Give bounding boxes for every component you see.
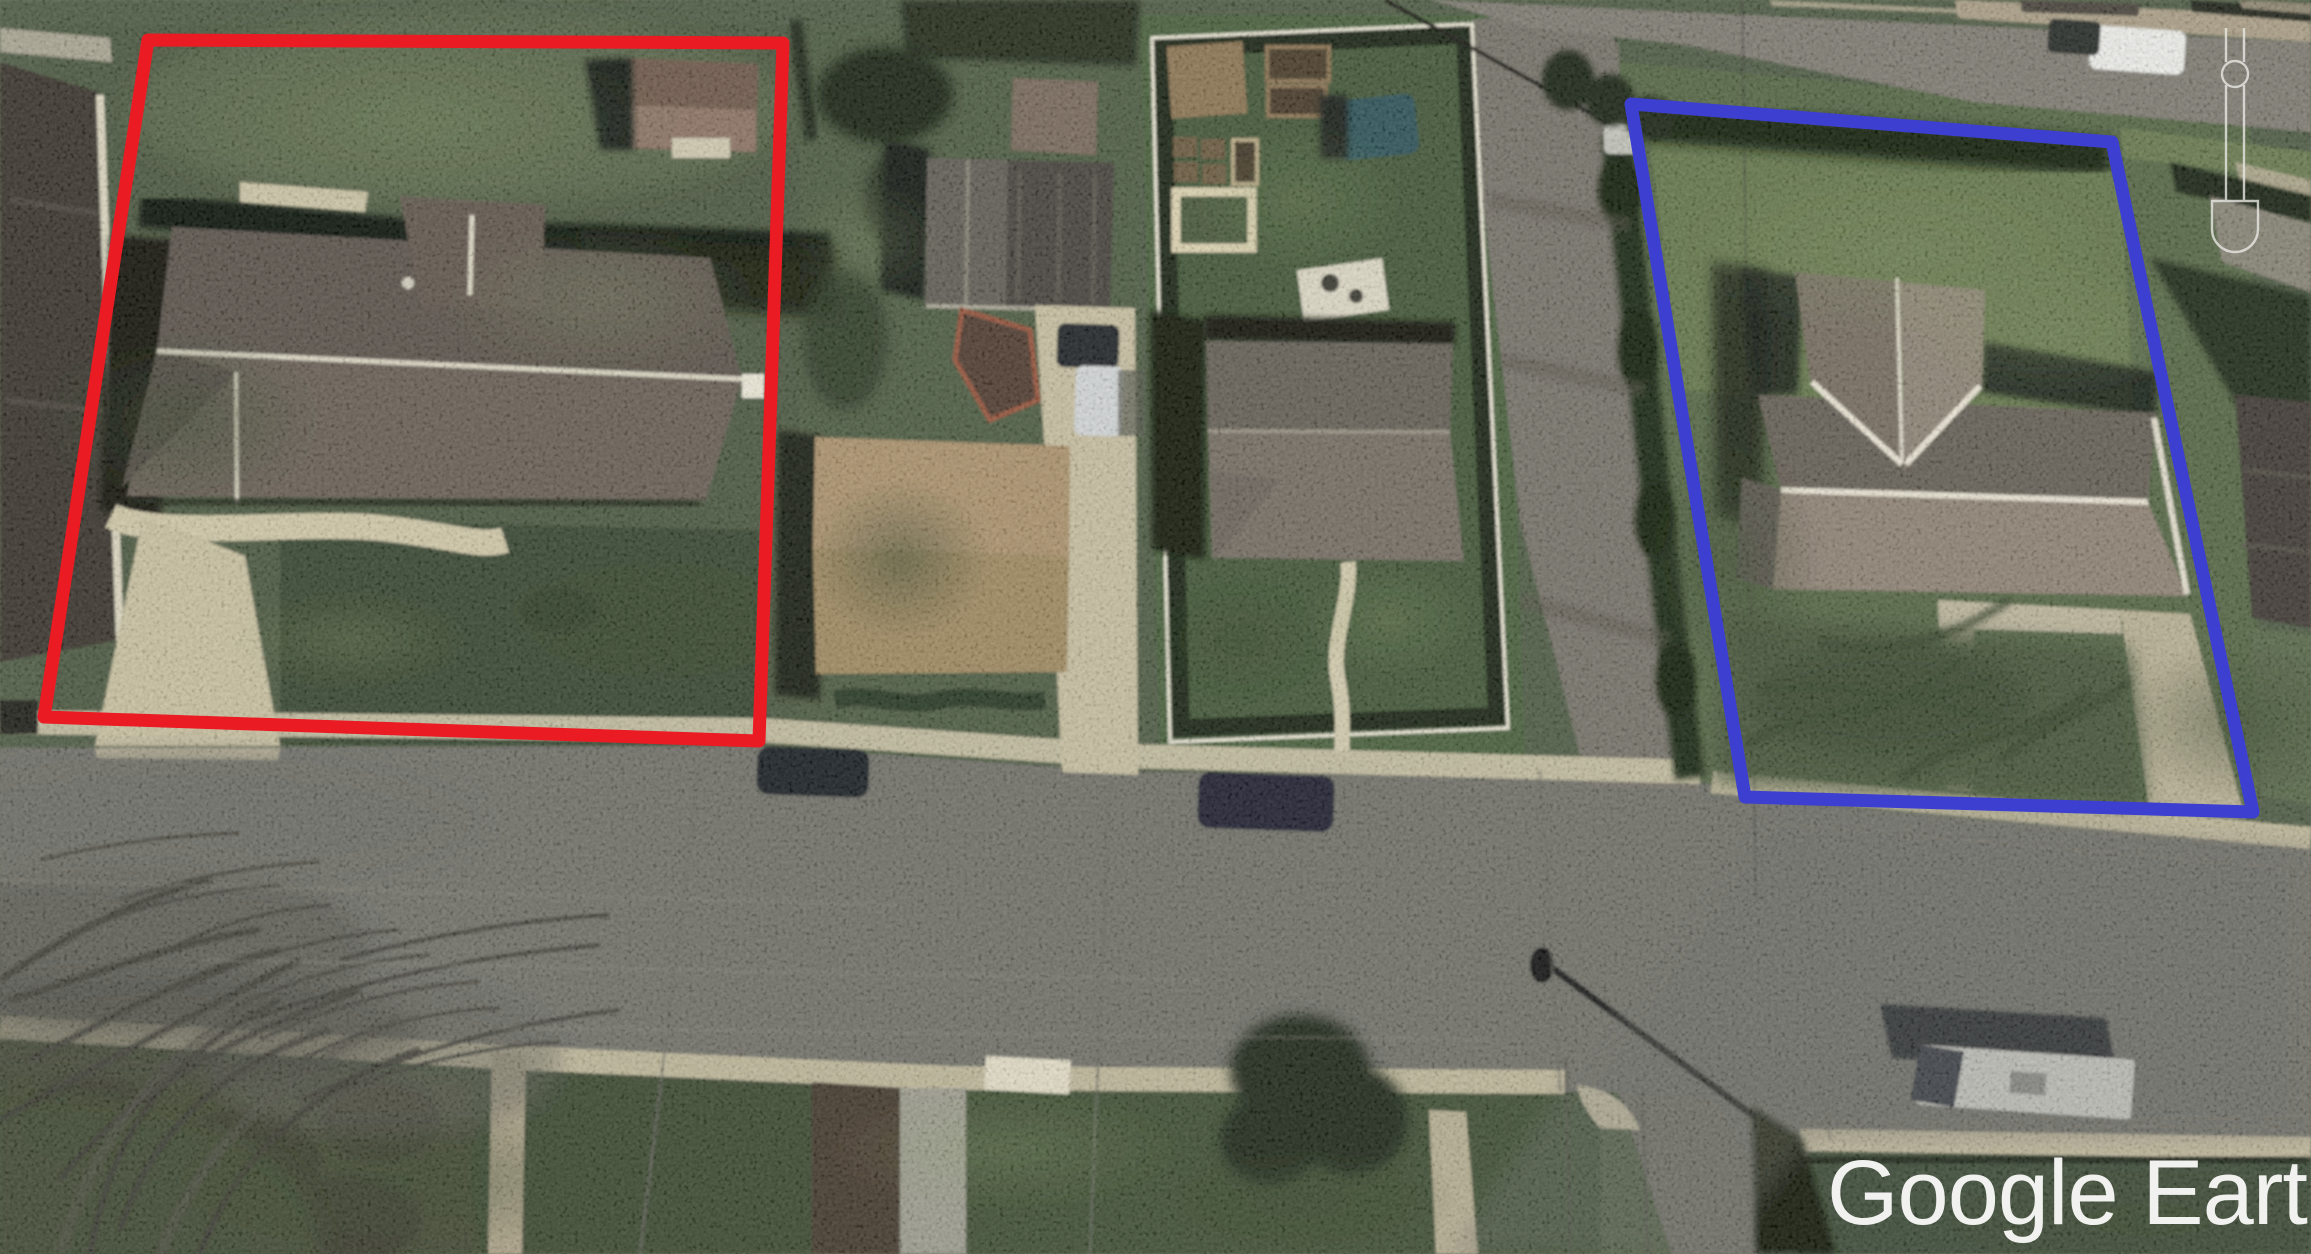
- svg-text:Google Earth: Google Earth: [1827, 1142, 2311, 1244]
